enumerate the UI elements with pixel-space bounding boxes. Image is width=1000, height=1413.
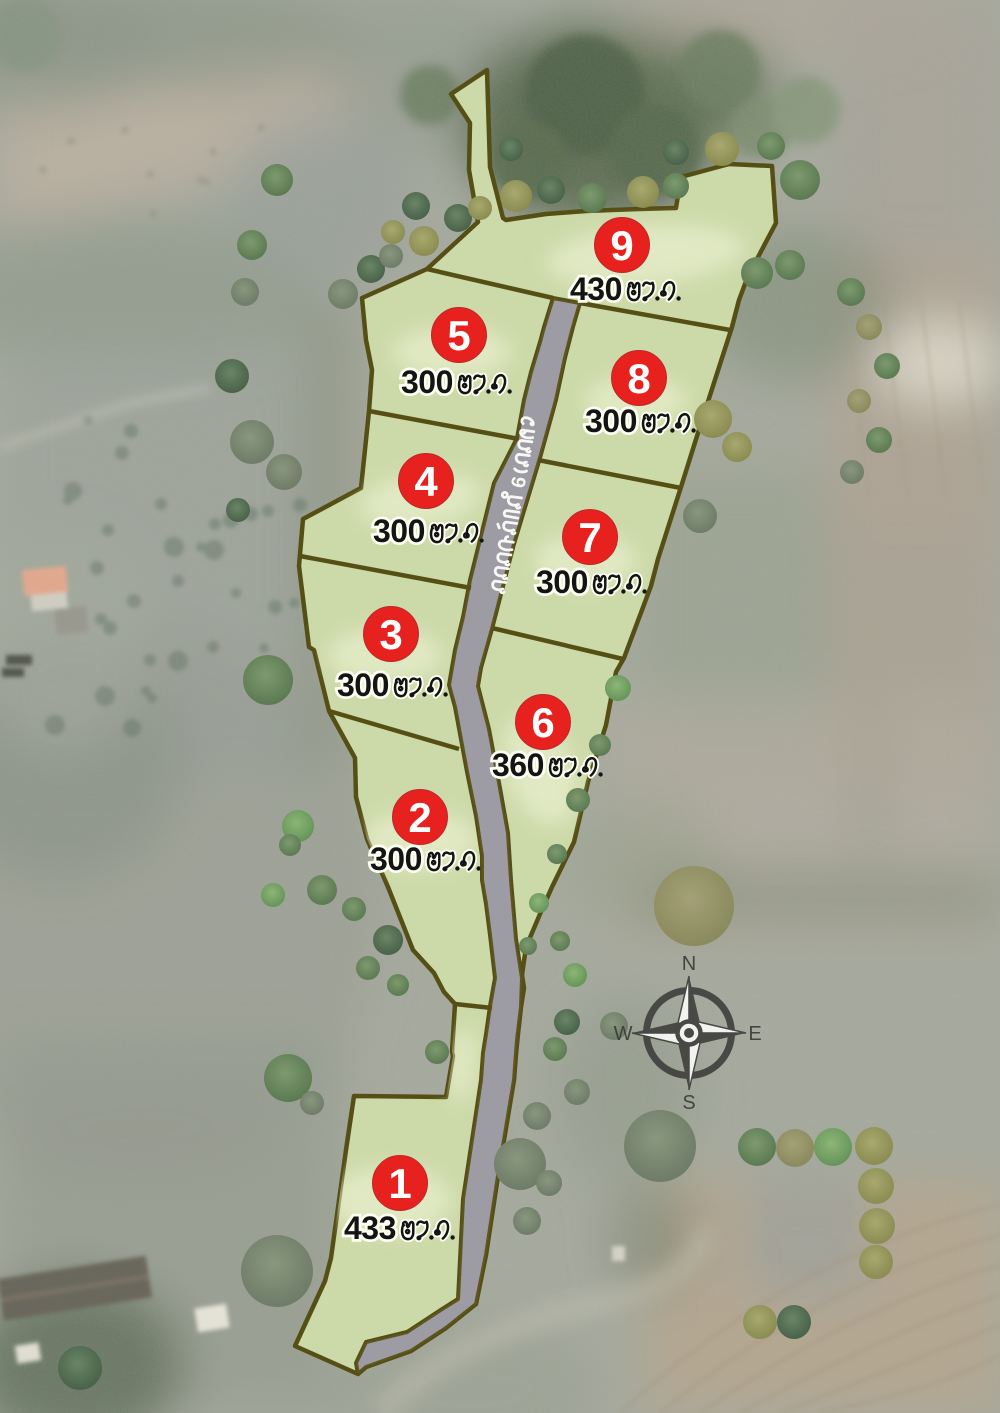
svg-text:360: 360 xyxy=(492,747,544,783)
svg-text:6: 6 xyxy=(531,699,554,746)
svg-text:430: 430 xyxy=(570,271,622,307)
svg-text:300: 300 xyxy=(370,841,422,877)
svg-text:3: 3 xyxy=(379,611,402,658)
svg-text:9: 9 xyxy=(610,222,633,269)
svg-text:300: 300 xyxy=(401,364,453,400)
svg-text:300: 300 xyxy=(536,564,588,600)
svg-text:2: 2 xyxy=(408,794,431,841)
svg-text:300: 300 xyxy=(585,403,637,439)
svg-text:433: 433 xyxy=(344,1210,396,1246)
svg-text:S: S xyxy=(682,1092,695,1114)
svg-text:300: 300 xyxy=(337,667,389,703)
svg-text:8: 8 xyxy=(627,355,650,402)
svg-text:4: 4 xyxy=(414,458,438,505)
svg-text:N: N xyxy=(682,953,696,975)
svg-text:W: W xyxy=(614,1023,633,1045)
svg-text:1: 1 xyxy=(388,1160,411,1207)
svg-text:E: E xyxy=(748,1023,761,1045)
svg-text:7: 7 xyxy=(578,514,601,561)
svg-text:300: 300 xyxy=(373,513,425,549)
svg-text:5: 5 xyxy=(447,312,470,359)
